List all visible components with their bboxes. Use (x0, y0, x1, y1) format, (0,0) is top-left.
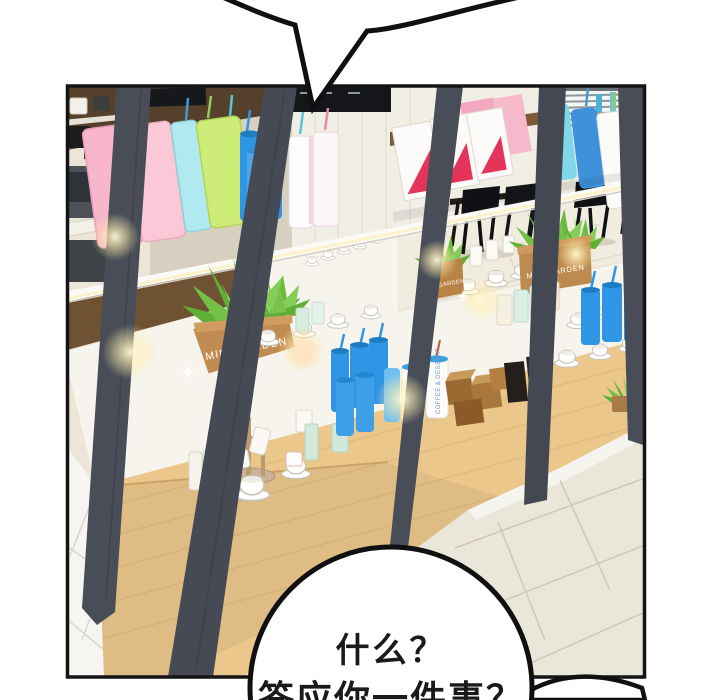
mug (93, 96, 109, 111)
comic-page: MINI GARDEN MINI GARDEN MINI GARDEN (0, 0, 720, 700)
menu-board (146, 87, 207, 107)
speech-text-line1: 什么？ (336, 632, 447, 670)
comic-panel-art: MINI GARDEN MINI GARDEN MINI GARDEN (0, 0, 720, 700)
speech-text-line2: 答应你一件事？ (258, 678, 524, 700)
tumbler-label-2: COFFEE & DESSERT (436, 348, 442, 414)
mug (70, 98, 87, 114)
